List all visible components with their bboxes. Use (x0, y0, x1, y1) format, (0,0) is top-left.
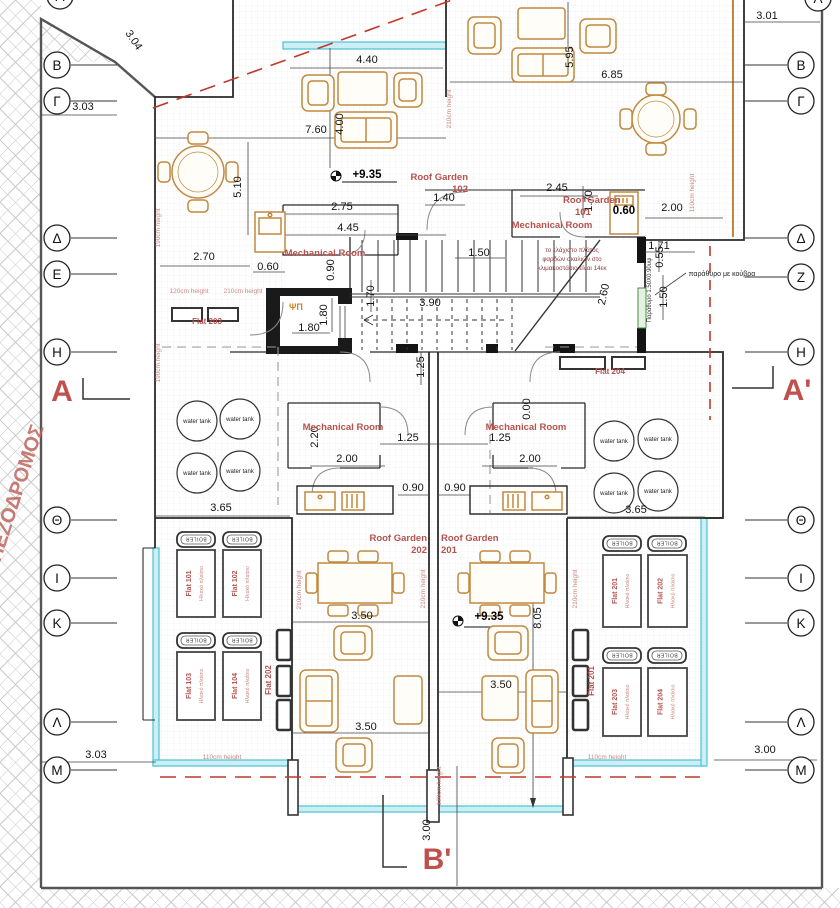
label: 3.01 (756, 10, 777, 22)
section-marker: A' (783, 374, 812, 407)
label: 1.50 (468, 247, 489, 259)
label: 210cm height (296, 570, 303, 609)
label: 3.65 (210, 502, 231, 514)
label: 102 (452, 184, 468, 195)
label: 5.10 (232, 176, 244, 197)
boiler-label: BOILER (231, 536, 252, 542)
label: 4.40 (356, 54, 377, 66)
grid-marker-letter: Ι (55, 571, 59, 586)
label: 5.95 (564, 46, 576, 67)
solar-panel-flat-label: Flat 201 (612, 578, 619, 604)
label: 190cm height (155, 208, 162, 247)
water-tank-label: water tank (225, 469, 255, 475)
grid-marker-letter: Μ (51, 763, 62, 778)
label: 2.45 (546, 182, 567, 194)
boiler-label: BOILER (185, 536, 206, 542)
label: 0.00 (521, 398, 533, 419)
label: Mechanical Room (285, 248, 366, 259)
water-tank-label: water tank (182, 471, 212, 477)
grid-marker-letter: Ζ (797, 270, 805, 285)
label: Flat 204 (595, 367, 625, 376)
label: Flat 203 (192, 317, 222, 326)
water-tank-label: water tank (225, 417, 255, 423)
label: 210cm height (223, 288, 262, 295)
label: 0.60 (613, 205, 635, 217)
label: 3.50 (351, 610, 372, 622)
label: 3.00 (421, 819, 433, 840)
label: +9.35 (474, 611, 504, 623)
label: 3.03 (72, 101, 93, 113)
label: 110cm height (689, 174, 696, 213)
label: 2.00 (336, 453, 357, 465)
solar-panel-sub-label: Ηλιακό πλαίσιο (198, 566, 205, 601)
boiler-label: BOILER (656, 652, 677, 658)
label: 4.45 (337, 222, 358, 234)
label: Flat 201 (587, 666, 596, 696)
solar-panel-sub-label: Ηλιακό πλαίσιο (624, 684, 631, 719)
label: Mechanical Room (486, 422, 567, 433)
grid-marker-letter: Η (796, 345, 806, 360)
label: Παράθυρο 1.50Χ0.90υψ (646, 258, 653, 323)
label: 120cm height (169, 288, 208, 295)
label: παράθυρο με κούβρα (689, 270, 756, 278)
boiler-label: BOILER (185, 637, 206, 643)
label: 2.00 (661, 202, 682, 214)
grid-marker-letter: Κ (52, 616, 61, 631)
grid-marker-letter: Γ (53, 94, 61, 109)
label: 101 (575, 207, 592, 218)
boiler-label: BOILER (611, 540, 632, 546)
label: 0.60 (257, 261, 278, 273)
label: 190cm height (155, 343, 162, 382)
grid-marker-letter: Δ (52, 231, 61, 246)
label: 8.05 (532, 607, 544, 628)
section-marker: B' (423, 843, 452, 876)
label: το ελάχιστο πλάτος (545, 246, 598, 254)
label: ΨΠ (289, 302, 303, 312)
dining-table (318, 563, 392, 603)
grid-marker-letter: Θ (796, 513, 807, 528)
stair-window (638, 288, 646, 328)
section-marker: A (51, 375, 73, 408)
label: 210cm height (446, 89, 453, 128)
grid-marker-letter: Ε (52, 267, 61, 282)
grid-marker-letter: Α (813, 0, 822, 6)
label: 110cm height (588, 754, 627, 761)
solar-panel-flat-label: Flat 101 (186, 570, 193, 596)
solar-panel-sub-label: Ηλιακό πλαίσιο (198, 668, 205, 703)
label: 210cm height (572, 569, 579, 608)
label: 2.60 (596, 283, 612, 306)
solar-panel-sub-label: Ηλιακό πλαίσιο (244, 566, 251, 601)
solar-panel-flat-label: Flat 104 (232, 673, 239, 699)
label: Roof Garden (369, 533, 427, 544)
floor-plan-svg: water tankwater tankwater tankwater tank… (0, 0, 840, 908)
label: +9.35 (352, 169, 382, 181)
label: 1.25 (489, 432, 510, 444)
solar-panel-sub-label: Ηλιακό πλαίσιο (670, 684, 677, 719)
label: 1.25 (397, 432, 418, 444)
solar-panel (648, 668, 687, 736)
label: 3.00 (754, 744, 775, 756)
label: 0.90 (402, 482, 423, 494)
grid-marker-letter: Β (796, 58, 805, 73)
water-tank-label: water tank (599, 439, 629, 445)
label: 1.50 (658, 286, 670, 307)
solar-panel (177, 652, 215, 720)
water-tank-label: water tank (643, 489, 673, 495)
label: Roof Garden (563, 195, 621, 206)
label: 2.75 (331, 201, 352, 213)
label: 3.50 (490, 679, 511, 691)
label: 2.70 (193, 251, 214, 263)
water-tank-label: water tank (182, 419, 212, 425)
solar-panel-flat-label: Flat 102 (232, 570, 239, 596)
stove (342, 492, 364, 510)
label: 1.80 (298, 322, 319, 334)
label: 3.65 (625, 504, 646, 516)
boiler-label: BOILER (656, 540, 677, 546)
solar-panel (603, 555, 641, 627)
label: Mechanical Room (512, 220, 593, 231)
solar-panel (223, 550, 261, 617)
solar-panel-sub-label: Ηλιακό πλαίσιο (670, 573, 677, 608)
label: Roof Garden (410, 172, 468, 183)
label: 110cm height (203, 754, 242, 761)
grid-marker-letter: Ι (799, 571, 803, 586)
grid-marker-letter: Γ (797, 94, 805, 109)
solar-panel (648, 555, 687, 627)
label: 1.80 (318, 304, 330, 325)
water-tank-label: water tank (599, 491, 629, 497)
coffee-table (518, 8, 565, 39)
grid-marker-letter: Λ (796, 715, 805, 730)
grid-marker-letter: Λ (52, 715, 61, 730)
floor-plan: water tankwater tankwater tankwater tank… (0, 0, 840, 908)
solar-panel-sub-label: Ηλιακό πλαίσιο (244, 668, 251, 703)
label: 1.25 (415, 356, 427, 377)
solar-panel (223, 652, 261, 720)
label: 0.90 (325, 259, 337, 280)
boiler-label: BOILER (611, 652, 632, 658)
label: 4.00 (334, 113, 346, 134)
label: 201 (441, 545, 458, 556)
label: Mechanical Room (303, 422, 384, 433)
label: 7.60 (305, 124, 326, 136)
label: 6.85 (601, 69, 622, 81)
solar-panel (177, 550, 215, 617)
solar-panel-flat-label: Flat 202 (658, 578, 665, 604)
solar-panel-flat-label: Flat 103 (186, 673, 193, 699)
label: 3.04 (123, 28, 145, 52)
grid-marker-letter: Α (55, 0, 64, 4)
label: 1.70 (365, 285, 377, 306)
label: κλιμακοστάσιο είναι 14εκ (537, 264, 607, 272)
grid-marker-letter: Θ (52, 513, 63, 528)
grid-marker-letter: Η (52, 345, 62, 360)
grid-marker-letter: Κ (796, 616, 805, 631)
label: 3.03 (85, 749, 106, 761)
label: 202 (411, 545, 427, 556)
label: Roof Garden (441, 533, 499, 544)
label: 3.50 (355, 721, 376, 733)
label: 0.90 (444, 482, 465, 494)
coffee-table (394, 676, 422, 724)
stove (503, 492, 525, 510)
label: φαρδών σκαλιών στο (542, 255, 602, 263)
grid-marker-letter: Δ (796, 231, 805, 246)
label: 0.55 (654, 246, 666, 267)
label: 3.90 (419, 297, 440, 309)
boiler-label: BOILER (231, 637, 252, 643)
water-tank-label: water tank (643, 437, 673, 443)
label: 210cm height (420, 569, 427, 608)
solar-panel-flat-label: Flat 204 (658, 689, 665, 715)
solar-panel (603, 668, 641, 736)
label: 120cm height (436, 766, 443, 805)
grid-marker-letter: Β (52, 58, 61, 73)
solar-panel-flat-label: Flat 203 (612, 689, 619, 715)
label: Flat 202 (264, 665, 273, 695)
solar-panel-sub-label: Ηλιακό πλαίσιο (624, 573, 631, 608)
grid-marker-letter: Μ (795, 763, 806, 778)
coffee-table (338, 72, 387, 105)
dining-table (470, 563, 544, 603)
label: 2.00 (519, 453, 540, 465)
